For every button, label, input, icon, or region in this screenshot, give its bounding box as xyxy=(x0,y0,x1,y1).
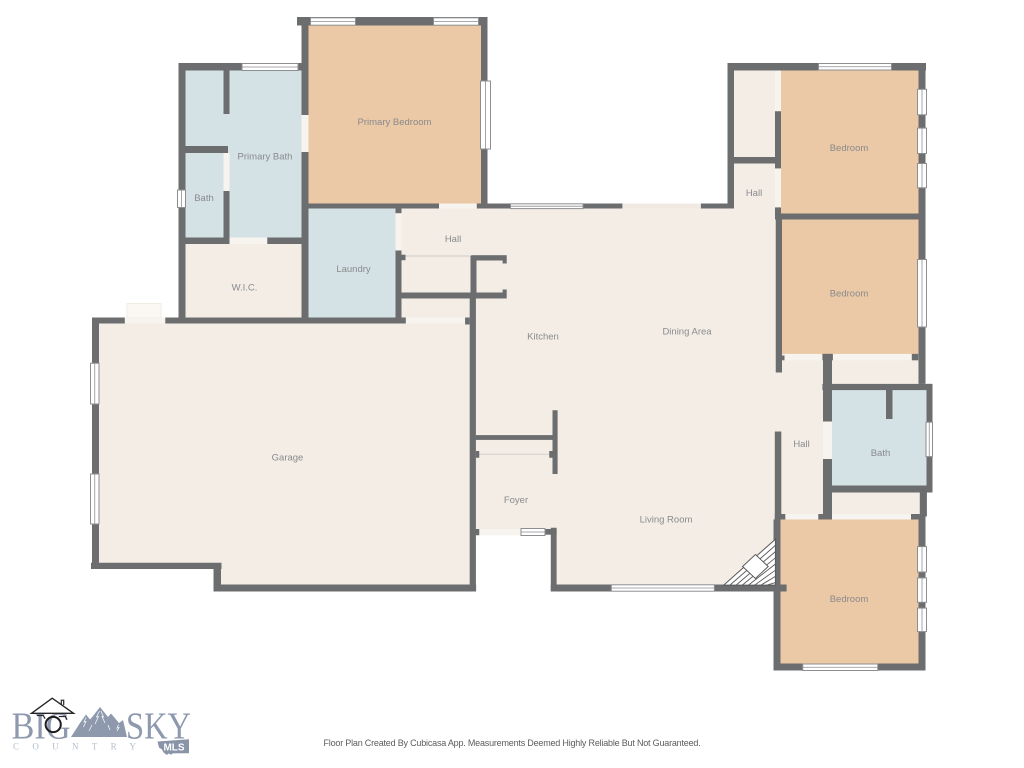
svg-text:Bedroom: Bedroom xyxy=(830,143,869,154)
svg-text:Bedroom: Bedroom xyxy=(830,289,869,300)
svg-text:Garage: Garage xyxy=(272,453,304,464)
svg-text:Dining Area: Dining Area xyxy=(662,327,712,338)
svg-text:Bath: Bath xyxy=(871,448,891,459)
svg-text:Primary Bedroom: Primary Bedroom xyxy=(358,117,432,128)
svg-text:Bath: Bath xyxy=(194,193,214,204)
svg-text:Hall: Hall xyxy=(793,439,809,450)
svg-text:Laundry: Laundry xyxy=(336,264,371,275)
svg-text:Living Room: Living Room xyxy=(640,515,693,526)
svg-text:Kitchen: Kitchen xyxy=(527,332,559,343)
svg-text:COUNTRY: COUNTRY xyxy=(13,742,150,752)
svg-text:Primary Bath: Primary Bath xyxy=(238,152,293,163)
svg-text:W.I.C.: W.I.C. xyxy=(232,283,258,294)
svg-text:Foyer: Foyer xyxy=(504,495,528,506)
svg-text:Bedroom: Bedroom xyxy=(830,594,869,605)
svg-text:Hall: Hall xyxy=(746,188,762,199)
svg-text:MLS: MLS xyxy=(163,742,184,753)
svg-text:Hall: Hall xyxy=(445,234,461,245)
svg-text:Floor Plan Created By Cubicasa: Floor Plan Created By Cubicasa App. Meas… xyxy=(323,738,700,748)
